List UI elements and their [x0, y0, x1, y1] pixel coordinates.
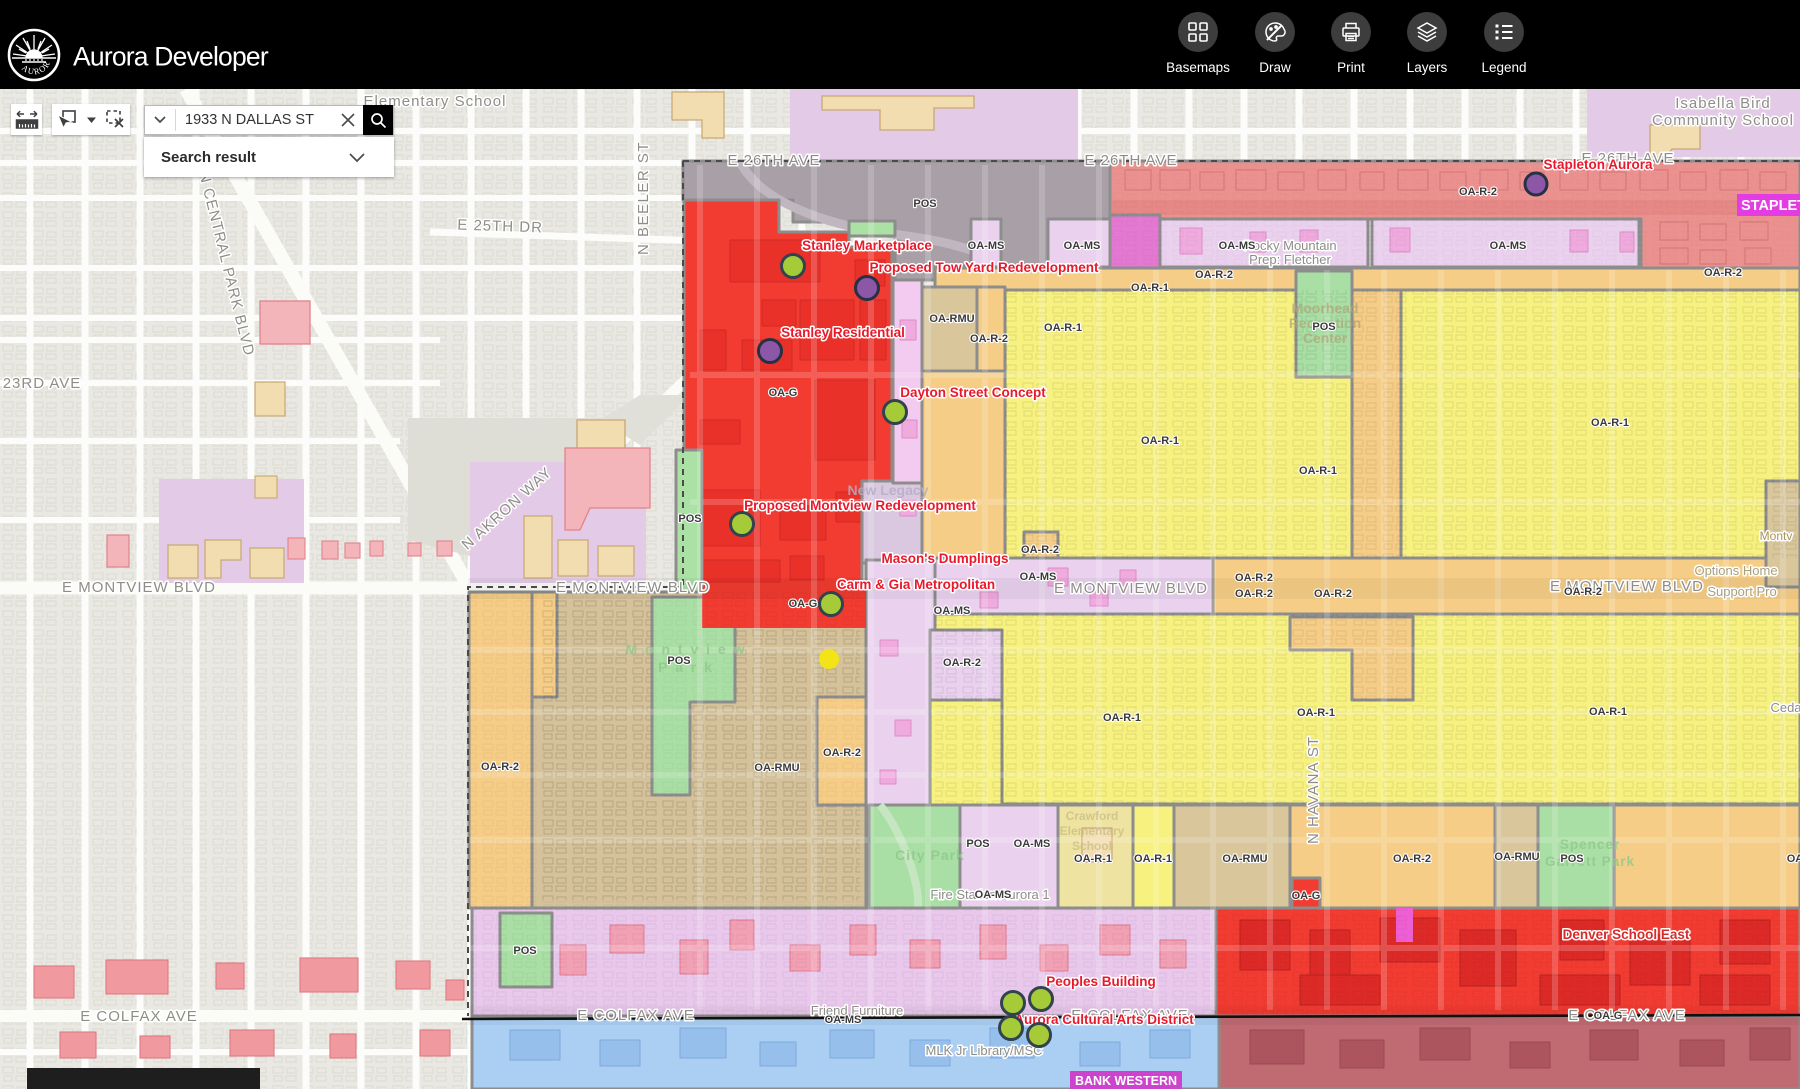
svg-text:Garrett Park: Garrett Park: [1545, 854, 1635, 869]
svg-text:OA-G: OA-G: [1292, 890, 1321, 902]
svg-text:OA-R-1: OA-R-1: [1299, 465, 1337, 477]
svg-text:POS: POS: [1560, 853, 1583, 865]
svg-text:OA-R-2: OA-R-2: [1021, 544, 1059, 556]
svg-text:E COLFAX AVE: E COLFAX AVE: [1568, 1007, 1686, 1024]
svg-text:OA-R-2: OA-R-2: [1235, 572, 1273, 584]
svg-text:School: School: [1072, 839, 1112, 853]
svg-text:Montv: Montv: [1760, 529, 1793, 543]
svg-text:OA-RMU: OA-RMU: [929, 313, 974, 325]
svg-text:Crawford: Crawford: [1066, 809, 1119, 823]
svg-text:OA-R-2: OA-R-2: [1393, 853, 1431, 865]
svg-text:OA-RMU: OA-RMU: [754, 762, 799, 774]
svg-text:Options Home: Options Home: [1694, 563, 1777, 578]
svg-text:OA-MS: OA-MS: [1490, 240, 1527, 252]
svg-text:OA-MS: OA-MS: [1020, 571, 1057, 583]
svg-text:POS: POS: [1312, 321, 1335, 333]
svg-text:Proposed Montview Redevelopmen: Proposed Montview Redevelopment: [744, 498, 976, 513]
svg-text:Mason's Dumplings: Mason's Dumplings: [882, 551, 1009, 566]
svg-text:OA-R-1: OA-R-1: [1074, 853, 1112, 865]
svg-text:POS: POS: [513, 945, 536, 957]
svg-text:POS: POS: [678, 513, 701, 525]
svg-text:E 26TH AVE: E 26TH AVE: [1084, 152, 1177, 169]
svg-text:Community School: Community School: [1652, 112, 1794, 129]
svg-text:OA-G: OA-G: [1594, 1010, 1623, 1022]
svg-text:OA-R-1: OA-R-1: [1591, 417, 1629, 429]
svg-text:OA: OA: [1787, 853, 1800, 865]
svg-text:23RD AVE: 23RD AVE: [3, 375, 82, 392]
svg-text:Spencer: Spencer: [1560, 837, 1620, 852]
svg-text:E MONTVIEW BLVD: E MONTVIEW BLVD: [556, 579, 710, 596]
svg-text:Carm & Gia Metropolitan: Carm & Gia Metropolitan: [837, 577, 995, 592]
svg-text:City Park: City Park: [895, 847, 965, 863]
svg-text:OA-RMU: OA-RMU: [1494, 851, 1539, 863]
svg-text:OA-R-1: OA-R-1: [1134, 853, 1172, 865]
svg-text:New Legacy: New Legacy: [848, 482, 929, 498]
svg-text:OA-MS: OA-MS: [1064, 240, 1101, 252]
svg-text:Ceda: Ceda: [1770, 700, 1800, 715]
svg-text:E COLFAX AVE: E COLFAX AVE: [577, 1007, 695, 1024]
svg-text:OA-R-1: OA-R-1: [1141, 435, 1179, 447]
svg-text:Stanley Marketplace: Stanley Marketplace: [802, 238, 932, 253]
svg-text:POS: POS: [667, 655, 690, 667]
svg-text:OA-MS: OA-MS: [825, 1014, 862, 1026]
svg-text:OA-R-2: OA-R-2: [823, 747, 861, 759]
svg-text:OA-R-2: OA-R-2: [943, 657, 981, 669]
svg-text:OA-MS: OA-MS: [934, 605, 971, 617]
svg-text:POS: POS: [913, 198, 936, 210]
svg-text:Stanley Residential: Stanley Residential: [781, 325, 905, 340]
svg-text:E 25TH DR: E 25TH DR: [457, 217, 543, 237]
svg-text:N HAVANA ST: N HAVANA ST: [1305, 736, 1322, 844]
svg-text:OA-R-2: OA-R-2: [1459, 186, 1497, 198]
svg-text:OA-G: OA-G: [769, 387, 798, 399]
svg-text:OA-R-2: OA-R-2: [1704, 267, 1742, 279]
svg-text:Moorhead: Moorhead: [1292, 300, 1359, 316]
svg-text:Rocky Mountain: Rocky Mountain: [1243, 238, 1336, 253]
svg-text:Elementary: Elementary: [1060, 824, 1125, 838]
svg-text:Proposed Tow Yard Redevelopmen: Proposed Tow Yard Redevelopment: [869, 260, 1099, 275]
svg-text:OA-G: OA-G: [789, 598, 818, 610]
svg-text:OA-R-2: OA-R-2: [1314, 588, 1352, 600]
svg-text:Peoples Building: Peoples Building: [1046, 974, 1156, 989]
svg-text:Isabella Bird: Isabella Bird: [1675, 95, 1771, 112]
svg-text:BANK WESTERN: BANK WESTERN: [1075, 1074, 1177, 1088]
svg-text:Prep: Fletcher: Prep: Fletcher: [1249, 252, 1331, 267]
svg-text:OA-MS: OA-MS: [1014, 838, 1051, 850]
svg-text:OA-R-1: OA-R-1: [1297, 707, 1335, 719]
svg-text:OA-R-1: OA-R-1: [1103, 712, 1141, 724]
svg-text:OA-R-1: OA-R-1: [1589, 706, 1627, 718]
svg-text:OA-R-2: OA-R-2: [970, 333, 1008, 345]
svg-text:OA-R-1: OA-R-1: [1131, 282, 1169, 294]
svg-text:E 26TH AVE: E 26TH AVE: [727, 152, 820, 169]
svg-text:Stapleton Aurora: Stapleton Aurora: [1543, 157, 1653, 172]
svg-text:Dayton Street Concept: Dayton Street Concept: [900, 385, 1046, 400]
svg-text:E MONTVIEW BLVD: E MONTVIEW BLVD: [1054, 580, 1208, 597]
svg-text:Support Pro: Support Pro: [1707, 584, 1776, 599]
svg-text:OA-R-2: OA-R-2: [481, 761, 519, 773]
svg-text:OA-MS: OA-MS: [975, 889, 1012, 901]
svg-text:MLK Jr Library/MSC: MLK Jr Library/MSC: [925, 1043, 1042, 1058]
svg-text:E COLFAX AVE: E COLFAX AVE: [80, 1008, 198, 1025]
svg-text:POS: POS: [966, 838, 989, 850]
svg-text:Denver School East: Denver School East: [1563, 927, 1690, 942]
svg-text:OA-RMU: OA-RMU: [1222, 853, 1267, 865]
svg-text:OA-R-1: OA-R-1: [1044, 322, 1082, 334]
svg-text:STAPLET: STAPLET: [1741, 198, 1800, 214]
svg-text:OA-R-2: OA-R-2: [1235, 588, 1273, 600]
svg-text:OA-R-2: OA-R-2: [1195, 269, 1233, 281]
svg-text:E MONTVIEW BLVD: E MONTVIEW BLVD: [62, 579, 216, 596]
svg-text:OA-R-2: OA-R-2: [1564, 586, 1602, 598]
svg-text:OA-MS: OA-MS: [1219, 240, 1256, 252]
svg-text:OA-MS: OA-MS: [968, 240, 1005, 252]
svg-text:N BEELER ST: N BEELER ST: [635, 141, 652, 255]
